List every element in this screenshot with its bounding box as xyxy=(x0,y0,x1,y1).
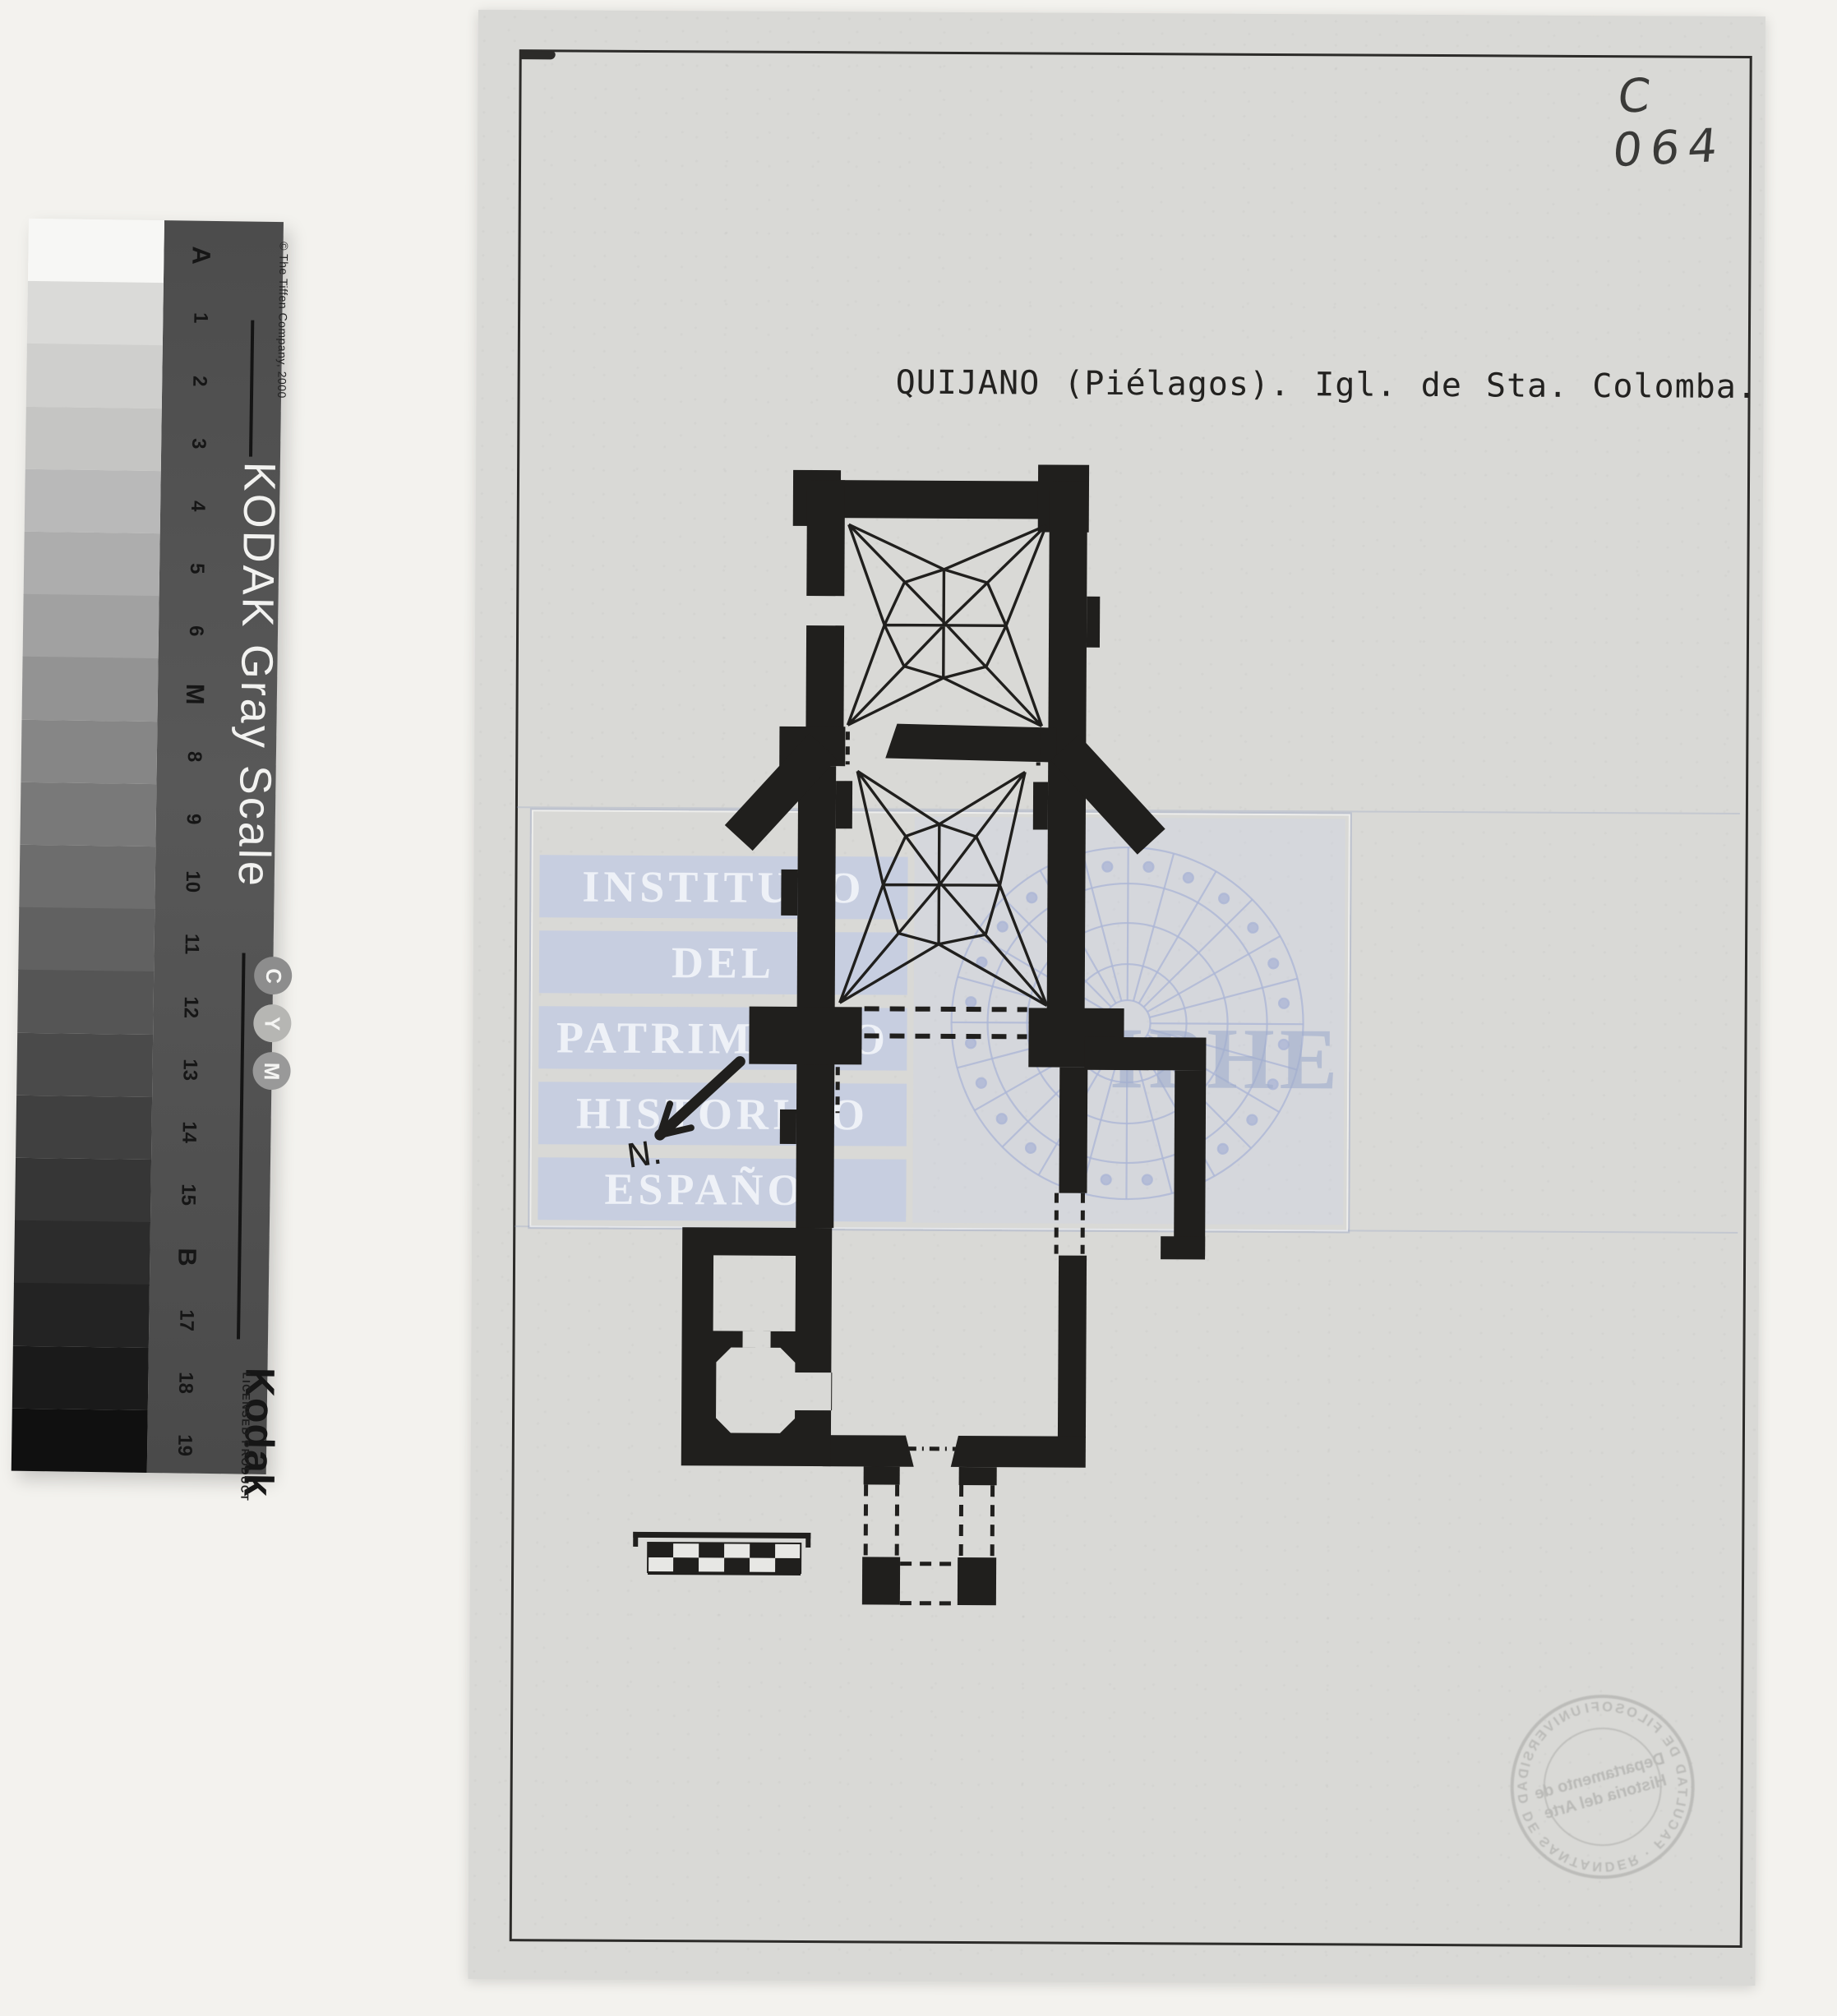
scale-bar-cell xyxy=(775,1543,801,1558)
patch-label-5: 5 xyxy=(185,563,208,574)
gray-patch-14 xyxy=(16,1096,152,1160)
gray-patch-4 xyxy=(25,469,161,534)
scanned-archival-photo: A123456M89101112131415B171819 KODAK Gray… xyxy=(0,0,1837,2016)
gray-patch-8 xyxy=(21,719,157,784)
gray-patch-18 xyxy=(12,1345,149,1410)
scale-bar-cell xyxy=(724,1557,750,1572)
kodak-licensed-product: LICENSED PRODUCT xyxy=(238,1372,252,1502)
gray-patch-column xyxy=(12,219,164,1473)
scale-bar-cell xyxy=(750,1543,775,1558)
gray-patch-17 xyxy=(13,1283,150,1348)
cym-circle-M: M xyxy=(252,1052,291,1091)
scale-bar xyxy=(633,1532,810,1575)
vault-ribs xyxy=(840,524,1050,1005)
scale-bar-cell xyxy=(724,1543,750,1557)
gray-patch-9 xyxy=(20,782,156,847)
gray-patch-M xyxy=(21,657,158,722)
scale-bar-cell xyxy=(673,1543,699,1557)
patch-label-10: 10 xyxy=(181,870,204,893)
north-label: N. xyxy=(625,1133,664,1175)
gray-patch-5 xyxy=(24,532,160,597)
patch-label-4: 4 xyxy=(186,501,209,512)
patch-label-17: 17 xyxy=(174,1309,197,1331)
north-arrow: N. xyxy=(625,1061,741,1177)
scale-bar-cell xyxy=(699,1543,724,1557)
patch-label-B: B xyxy=(172,1248,201,1266)
scale-bar-cell xyxy=(648,1543,673,1557)
patch-label-A: A xyxy=(186,246,215,265)
scale-bar-cell xyxy=(775,1558,801,1573)
gray-patch-A xyxy=(28,219,164,284)
scale-bar-cell xyxy=(750,1558,775,1573)
patch-label-8: 8 xyxy=(182,751,205,763)
cym-circle-C: C xyxy=(254,957,293,995)
scale-bar-cell xyxy=(699,1557,724,1572)
patch-label-11: 11 xyxy=(180,934,203,955)
tiffen-copyright: © The Tiffen Company, 2000 xyxy=(275,242,291,399)
patch-label-3: 3 xyxy=(187,438,210,450)
gray-patch-1 xyxy=(27,281,164,346)
scale-bar-cell xyxy=(648,1557,673,1572)
gray-patch-3 xyxy=(25,406,162,471)
patch-label-1: 1 xyxy=(188,312,211,324)
patch-label-18: 18 xyxy=(173,1372,196,1394)
kodak-gray-scale-ruler: A123456M89101112131415B171819 KODAK Gray… xyxy=(12,219,284,1474)
gray-patch-19 xyxy=(12,1408,148,1473)
patch-label-13: 13 xyxy=(178,1059,201,1081)
scale-bar-cell xyxy=(673,1557,699,1572)
gray-patch-11 xyxy=(18,907,155,972)
gray-patch-12 xyxy=(17,970,154,1035)
gray-patch-10 xyxy=(19,845,155,910)
gray-patch-15 xyxy=(15,1158,151,1223)
patch-label-19: 19 xyxy=(173,1434,196,1456)
gray-patch-6 xyxy=(23,594,159,659)
archival-document: C 064 QUIJANO (Piélagos). Igl. de Sta. C… xyxy=(468,10,1765,1986)
cym-circle-Y: Y xyxy=(253,1004,292,1043)
patch-label-2: 2 xyxy=(187,375,210,386)
kodak-gray-scale-title: KODAK Gray Scale xyxy=(228,461,285,888)
gray-patch-13 xyxy=(16,1032,153,1097)
gray-patch-2 xyxy=(26,344,163,408)
church-floor-plan: N. xyxy=(468,10,1765,1986)
patch-label-12: 12 xyxy=(178,996,201,1018)
gray-patch-B xyxy=(14,1220,150,1285)
patch-label-15: 15 xyxy=(176,1183,199,1206)
patch-label-M: M xyxy=(180,683,210,704)
patch-label-9: 9 xyxy=(182,814,205,825)
patch-label-6: 6 xyxy=(184,625,207,637)
patch-label-14: 14 xyxy=(177,1121,200,1143)
